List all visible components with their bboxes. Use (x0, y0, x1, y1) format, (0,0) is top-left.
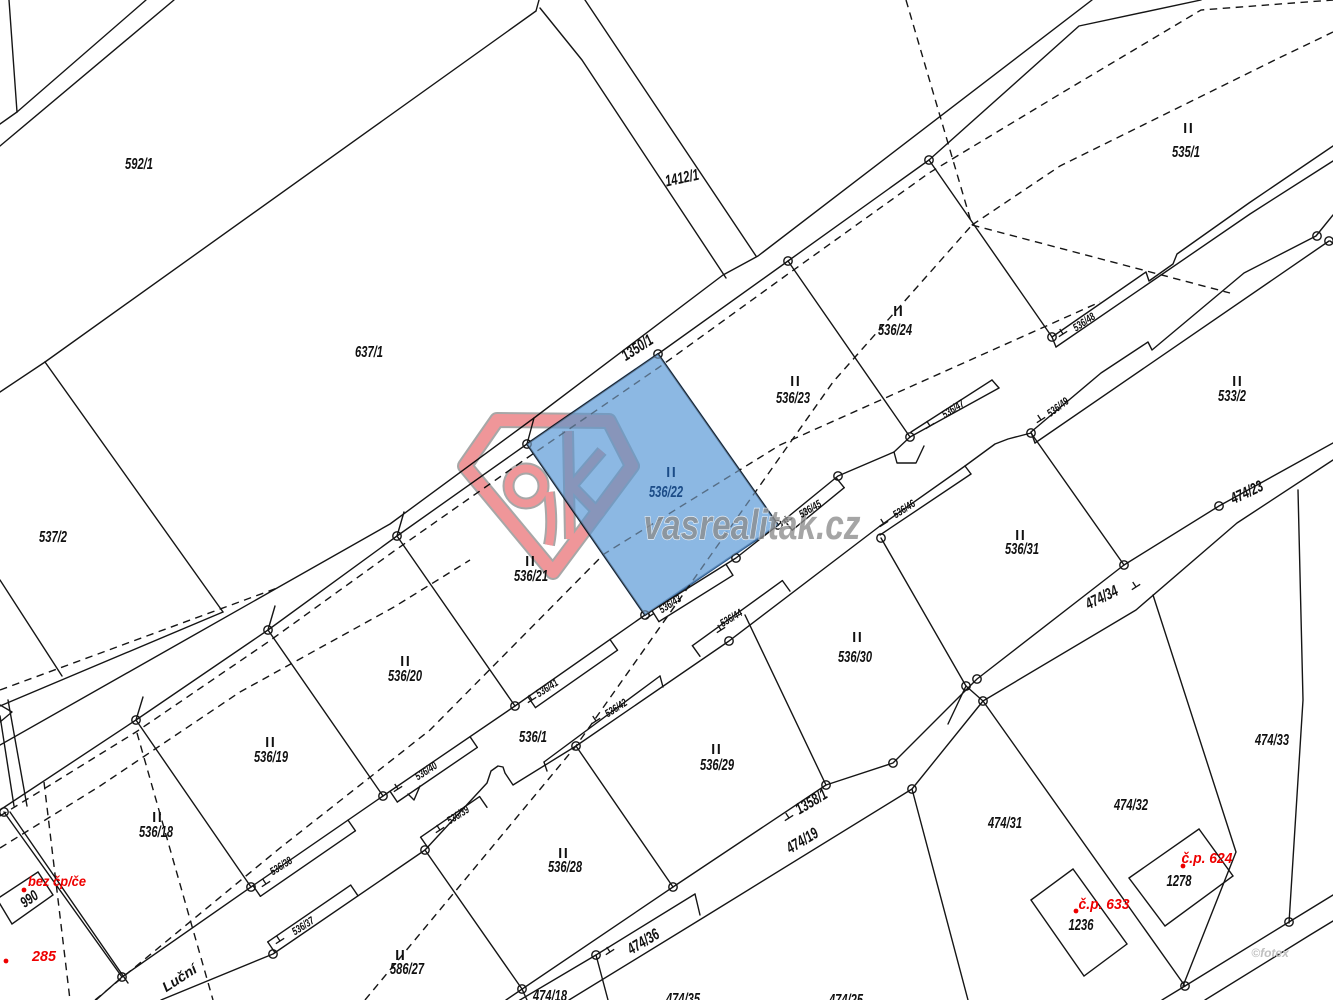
svg-text:536/21: 536/21 (514, 568, 548, 585)
svg-text:474/32: 474/32 (1113, 797, 1148, 814)
svg-text:č.p. 633: č.p. 633 (1079, 896, 1131, 913)
svg-text:1236: 1236 (1069, 917, 1094, 934)
svg-text:537/2: 537/2 (39, 529, 67, 546)
svg-text:536/23: 536/23 (776, 390, 810, 407)
svg-text:536/1: 536/1 (519, 729, 547, 746)
svg-text:č.p. 624: č.p. 624 (1182, 850, 1234, 867)
svg-text:©fotex: ©fotex (1251, 946, 1290, 960)
svg-text:bez čp/če: bez čp/če (28, 873, 86, 889)
svg-text:vasrealitak.cz: vasrealitak.cz (644, 501, 861, 548)
svg-text:536/31: 536/31 (1005, 541, 1039, 558)
svg-text:474/35: 474/35 (665, 991, 700, 1000)
svg-text:474/18: 474/18 (532, 988, 567, 1000)
svg-text:536/29: 536/29 (700, 757, 734, 774)
svg-text:1278: 1278 (1167, 873, 1192, 890)
svg-text:474/31: 474/31 (987, 815, 1022, 832)
svg-text:536/24: 536/24 (878, 322, 912, 339)
svg-text:536/19: 536/19 (254, 749, 288, 766)
svg-text:536/20: 536/20 (388, 668, 422, 685)
svg-text:535/1: 535/1 (1172, 144, 1200, 161)
svg-text:536/28: 536/28 (548, 859, 582, 876)
svg-text:474/33: 474/33 (1254, 732, 1289, 749)
svg-text:536/30: 536/30 (838, 649, 872, 666)
svg-text:592/1: 592/1 (125, 156, 153, 173)
svg-text:637/1: 637/1 (355, 344, 383, 361)
svg-text:285: 285 (31, 948, 57, 965)
svg-text:533/2: 533/2 (1218, 388, 1246, 405)
svg-text:536/22: 536/22 (649, 484, 683, 501)
svg-text:474/25: 474/25 (828, 992, 863, 1000)
svg-text:536/18: 536/18 (139, 824, 173, 841)
svg-text:586/27: 586/27 (390, 961, 425, 978)
